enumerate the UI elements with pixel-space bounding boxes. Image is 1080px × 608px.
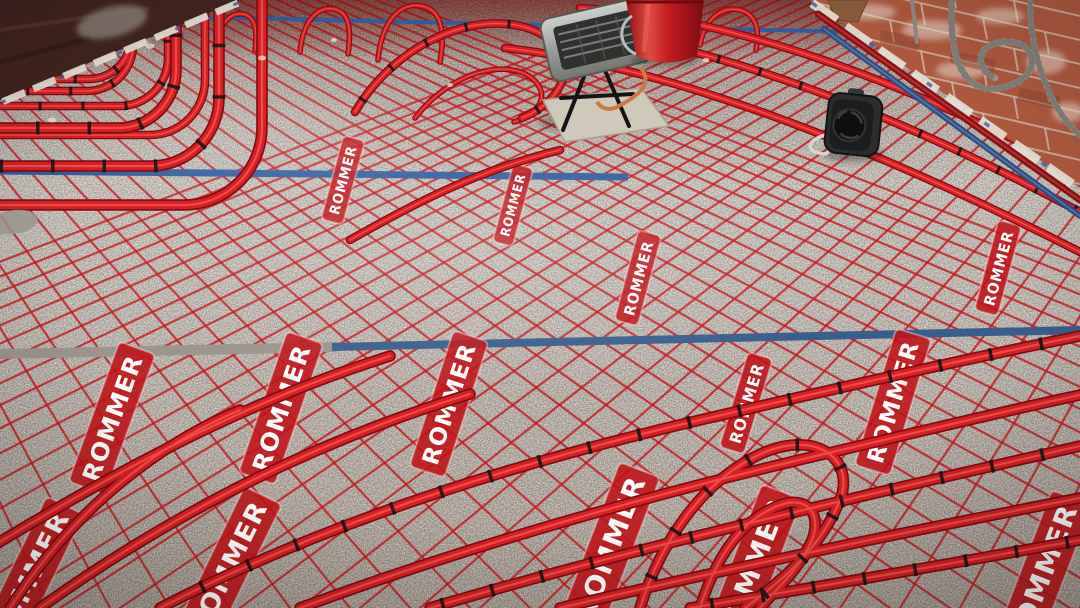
photo-underfloor-heating: ROMMERROMMERROMMERROMMERROMMERROMMERROMM… [0, 0, 1080, 608]
vignette [0, 0, 1080, 608]
